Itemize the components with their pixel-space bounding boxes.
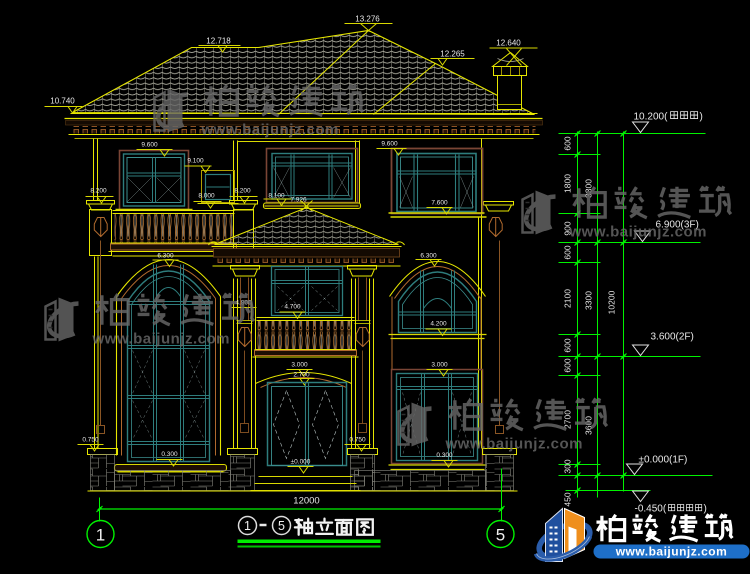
svg-text:3.000: 3.000: [431, 362, 448, 369]
svg-text:5: 5: [496, 526, 505, 545]
svg-text:8.100: 8.100: [268, 193, 285, 200]
svg-text:8.200: 8.200: [90, 188, 107, 195]
svg-text:10.200(: 10.200(: [634, 112, 669, 123]
svg-text:12000: 12000: [293, 496, 319, 507]
svg-text:600: 600: [563, 358, 573, 372]
svg-text:4.700: 4.700: [284, 304, 301, 311]
svg-text:6.300: 6.300: [420, 253, 437, 260]
svg-text:0.750: 0.750: [82, 437, 99, 444]
svg-text:9.600: 9.600: [141, 142, 158, 149]
svg-text:0.300: 0.300: [436, 452, 453, 459]
svg-text:www.baijunjz.com: www.baijunjz.com: [615, 545, 728, 559]
svg-text:9.100: 9.100: [187, 158, 204, 165]
svg-text:10.740: 10.740: [50, 97, 75, 106]
svg-text:10200: 10200: [607, 290, 617, 314]
svg-text:300: 300: [563, 459, 573, 473]
svg-text:): ): [704, 504, 707, 515]
svg-text:1800: 1800: [563, 174, 573, 193]
svg-text:2700: 2700: [563, 410, 573, 429]
svg-text:450: 450: [563, 492, 573, 506]
svg-text:3.000: 3.000: [291, 362, 308, 369]
svg-text:2.700: 2.700: [293, 372, 310, 379]
svg-text:7.926: 7.926: [290, 197, 307, 204]
svg-text:600: 600: [563, 245, 573, 259]
svg-text:0.300: 0.300: [161, 451, 178, 458]
svg-text:-0.450(: -0.450(: [635, 504, 667, 515]
svg-text:1: 1: [96, 526, 105, 545]
svg-text:5: 5: [278, 519, 285, 533]
svg-text:12.718: 12.718: [206, 37, 231, 46]
svg-text:600: 600: [563, 136, 573, 150]
svg-text:7.600: 7.600: [431, 200, 448, 207]
svg-text:4.200: 4.200: [430, 321, 447, 328]
svg-text:3300: 3300: [584, 291, 594, 310]
svg-text:12.265: 12.265: [440, 50, 465, 59]
svg-text:3.600(2F): 3.600(2F): [651, 332, 694, 343]
svg-text:12.640: 12.640: [496, 39, 521, 48]
svg-text:1: 1: [244, 519, 251, 533]
svg-text:9.600: 9.600: [381, 141, 398, 148]
svg-text:±0.000(1F): ±0.000(1F): [639, 455, 688, 466]
svg-text:2100: 2100: [563, 289, 573, 308]
svg-text:8.000: 8.000: [198, 193, 215, 200]
svg-text:0.750: 0.750: [349, 437, 366, 444]
svg-text:8.200: 8.200: [234, 188, 251, 195]
svg-text:600: 600: [563, 338, 573, 352]
svg-text:±0.000: ±0.000: [291, 459, 311, 466]
svg-text:13.276: 13.276: [355, 15, 380, 24]
svg-text:6.300: 6.300: [157, 253, 174, 260]
svg-text:): ): [700, 112, 703, 123]
